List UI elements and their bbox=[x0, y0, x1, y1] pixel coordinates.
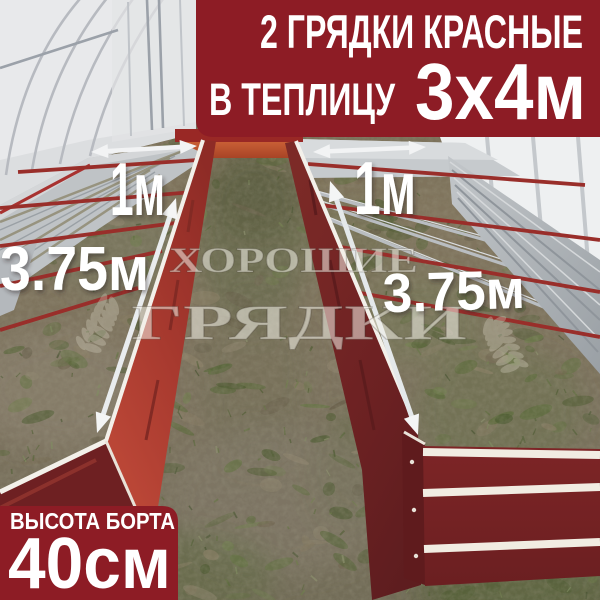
svg-text:В ТЕПЛИЦУ: В ТЕПЛИЦУ bbox=[209, 74, 396, 125]
svg-text:1м: 1м bbox=[354, 146, 416, 230]
svg-text:3.75м: 3.75м bbox=[382, 258, 526, 324]
svg-text:1м: 1м bbox=[110, 147, 165, 231]
svg-text:3х4м: 3х4м bbox=[415, 47, 586, 136]
svg-text:ХОРОШИЕ: ХОРОШИЕ bbox=[169, 240, 418, 280]
svg-text:40см: 40см bbox=[8, 524, 171, 600]
svg-text:3.75м: 3.75м bbox=[0, 235, 149, 304]
